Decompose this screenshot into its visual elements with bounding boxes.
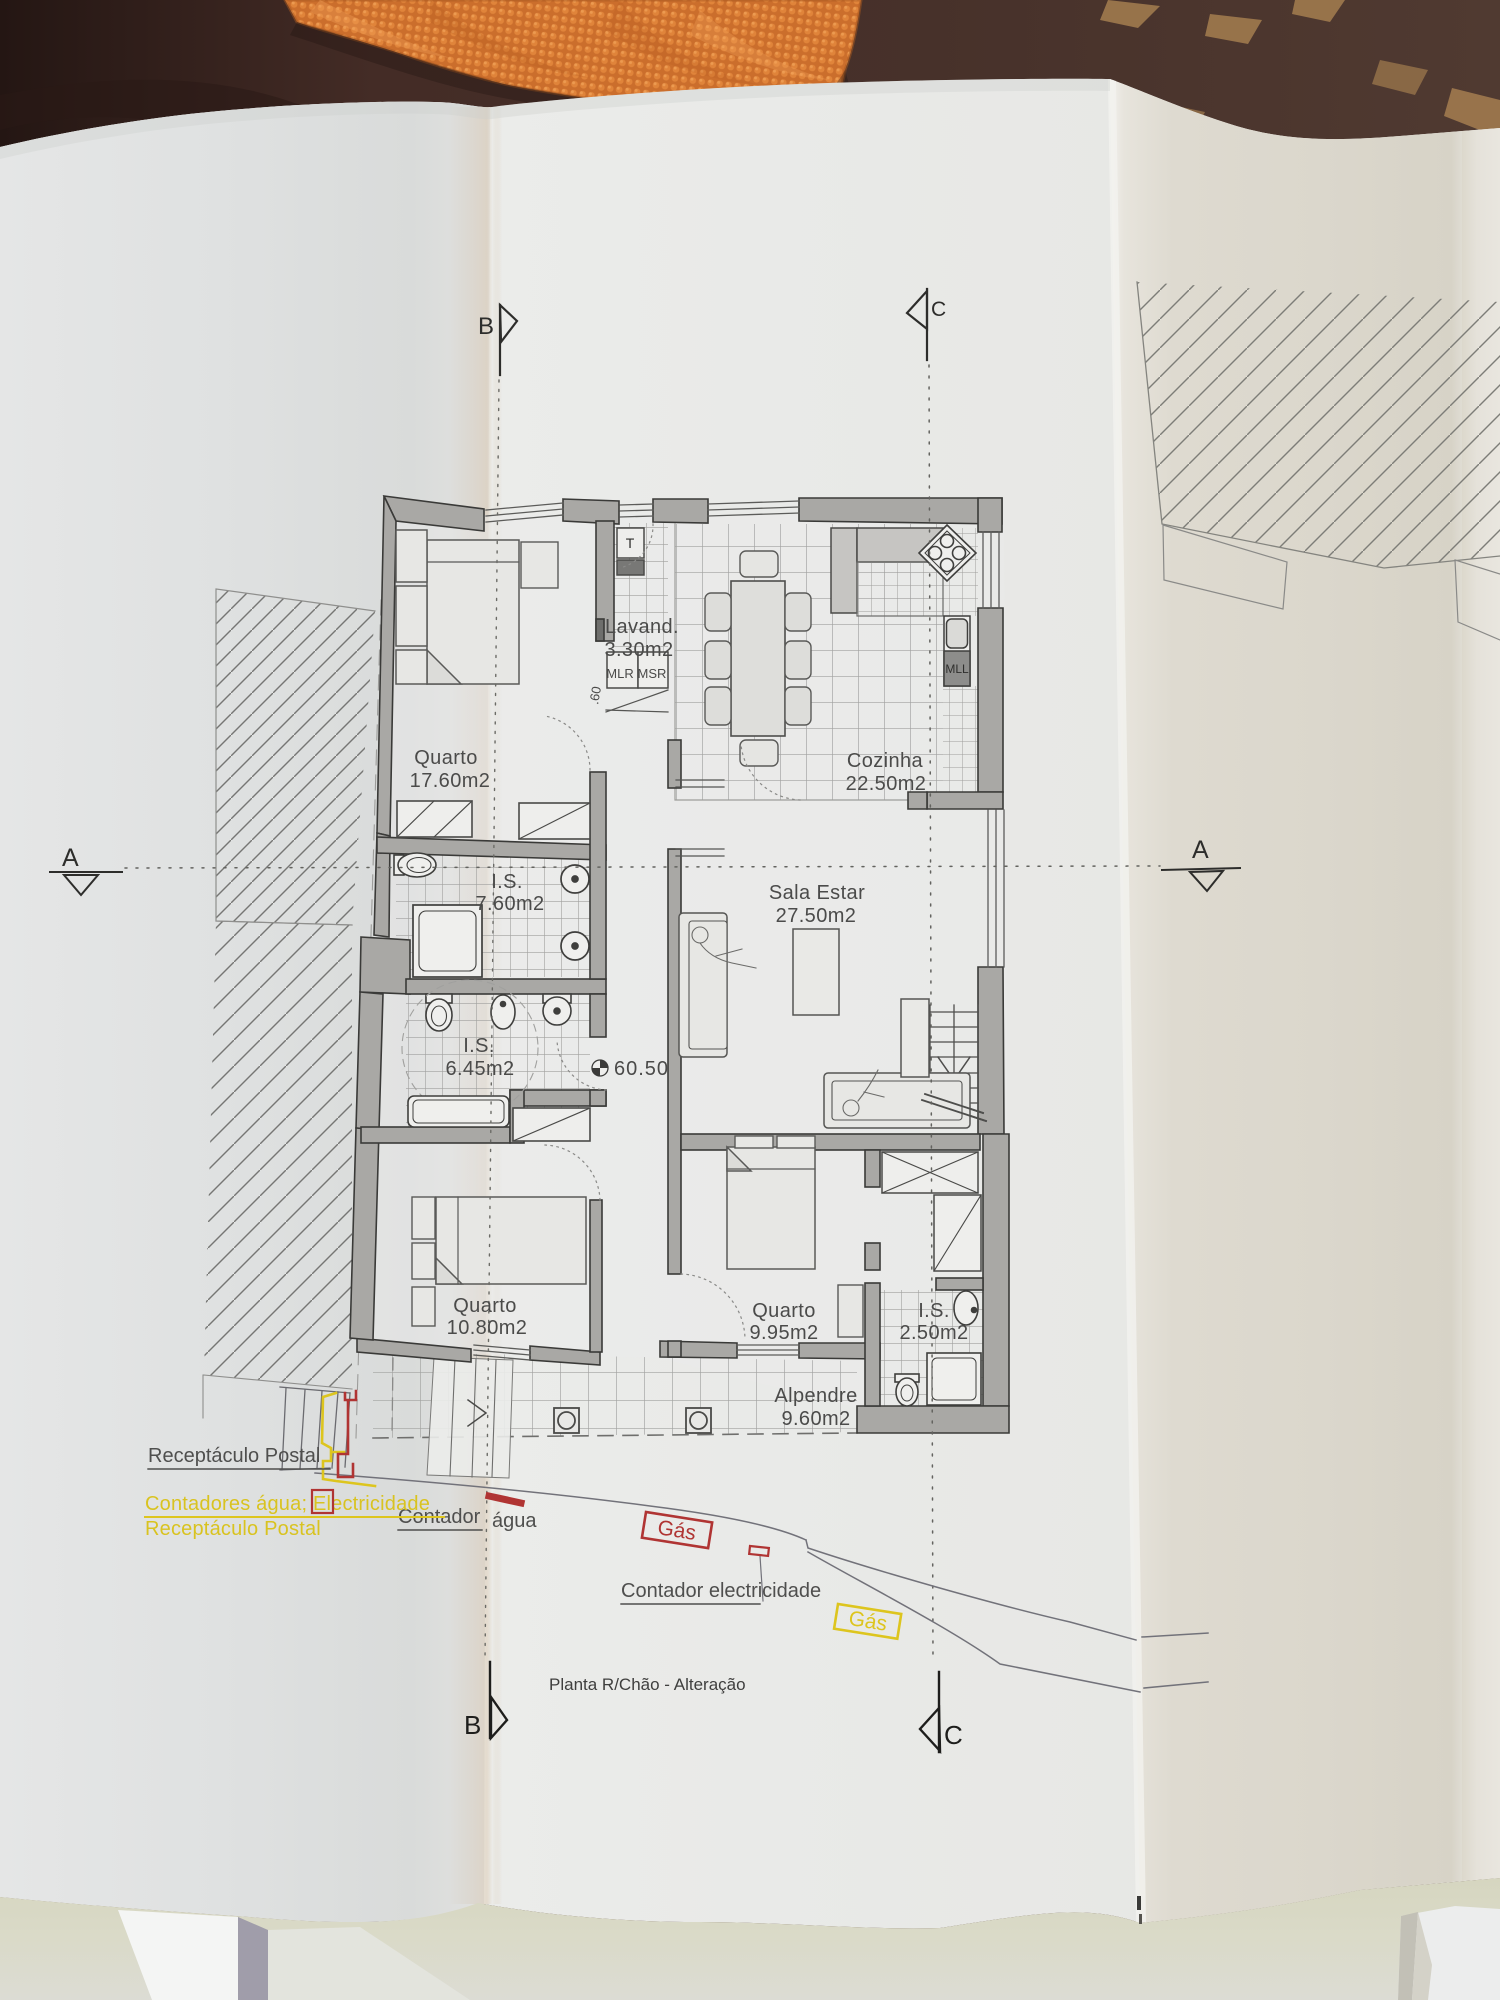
svg-text:MSR: MSR: [638, 666, 667, 681]
svg-text:I.S.: I.S.: [491, 871, 523, 893]
svg-text:7.60m2: 7.60m2: [475, 893, 544, 915]
svg-text:17.60m2: 17.60m2: [410, 770, 491, 792]
svg-text:I.S.: I.S.: [918, 1300, 950, 1322]
svg-text:6.45m2: 6.45m2: [445, 1058, 514, 1080]
svg-text:A: A: [1192, 836, 1209, 864]
svg-text:T: T: [626, 535, 635, 551]
svg-text:I.S.: I.S.: [463, 1035, 495, 1057]
svg-text:27.50m2: 27.50m2: [776, 905, 857, 927]
svg-text:C: C: [931, 298, 946, 321]
svg-text:9.95m2: 9.95m2: [749, 1322, 818, 1344]
svg-text:Alpendre: Alpendre: [774, 1385, 857, 1407]
svg-text:.60: .60: [586, 685, 604, 705]
svg-text:60.50: 60.50: [614, 1058, 669, 1080]
svg-text:Cozinha: Cozinha: [847, 750, 924, 772]
svg-text:Receptáculo Postal: Receptáculo Postal: [145, 1518, 321, 1540]
svg-text:A: A: [62, 844, 79, 872]
svg-text:Contadores água; Electricidade: Contadores água; Electricidade: [145, 1493, 430, 1515]
svg-text:Receptáculo Postal: Receptáculo Postal: [148, 1445, 320, 1467]
svg-text:Planta R/Chão - Alteração: Planta R/Chão - Alteração: [549, 1675, 746, 1694]
svg-text:C: C: [944, 1720, 963, 1750]
svg-text:MLL: MLL: [945, 662, 969, 676]
svg-text:B: B: [478, 313, 494, 340]
svg-text:3.30m2: 3.30m2: [604, 639, 673, 661]
svg-text:Quarto: Quarto: [453, 1295, 517, 1317]
svg-text:Sala Estar: Sala Estar: [769, 882, 865, 904]
svg-text:B: B: [464, 1710, 481, 1740]
svg-text:9.60m2: 9.60m2: [781, 1408, 850, 1430]
svg-text:Quarto: Quarto: [752, 1300, 816, 1322]
svg-text:Lavand.: Lavand.: [605, 616, 679, 638]
svg-text:MLR: MLR: [606, 666, 633, 681]
svg-text:2.50m2: 2.50m2: [899, 1322, 968, 1344]
svg-text:22.50m2: 22.50m2: [846, 773, 927, 795]
svg-text:Contador electricidade: Contador electricidade: [621, 1580, 821, 1602]
svg-text:Quarto: Quarto: [414, 747, 478, 769]
svg-text:água: água: [492, 1510, 537, 1532]
svg-text:10.80m2: 10.80m2: [447, 1317, 528, 1339]
